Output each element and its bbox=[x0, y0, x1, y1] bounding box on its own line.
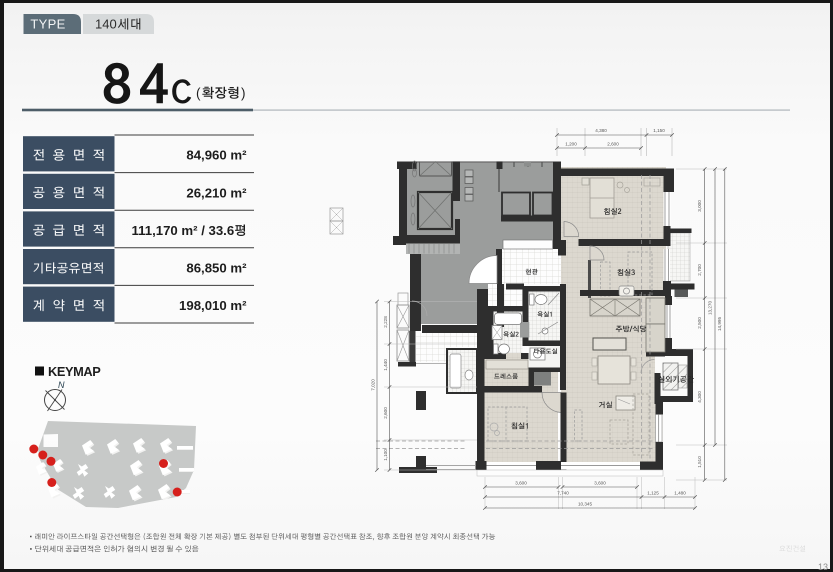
svg-text:1,125: 1,125 bbox=[647, 491, 659, 496]
svg-text:13: 13 bbox=[818, 562, 828, 572]
svg-text:2,600: 2,600 bbox=[383, 407, 388, 419]
svg-text:14,995: 14,995 bbox=[717, 317, 722, 331]
svg-text:4,380: 4,380 bbox=[595, 128, 607, 133]
svg-text:4,300: 4,300 bbox=[697, 391, 702, 403]
svg-text:2,228: 2,228 bbox=[383, 316, 388, 328]
svg-text:1,510: 1,510 bbox=[697, 456, 702, 468]
svg-text:10,345: 10,345 bbox=[578, 502, 592, 507]
svg-text:1,100: 1,100 bbox=[383, 449, 388, 461]
svg-text:N: N bbox=[58, 380, 65, 390]
svg-text:1,480: 1,480 bbox=[674, 491, 686, 496]
svg-text:3,600: 3,600 bbox=[515, 481, 527, 486]
svg-text:TYPE: TYPE bbox=[30, 17, 65, 32]
svg-text:2,600: 2,600 bbox=[607, 142, 619, 147]
svg-text:KEYMAP: KEYMAP bbox=[48, 364, 101, 379]
svg-text:26,210 m²: 26,210 m² bbox=[186, 185, 247, 200]
svg-text:86,850 m²: 86,850 m² bbox=[186, 261, 247, 276]
svg-text:140: 140 bbox=[95, 17, 117, 32]
svg-text:111,170 m² / 33.6: 111,170 m² / 33.6 bbox=[132, 223, 235, 238]
svg-text:3,600: 3,600 bbox=[594, 481, 606, 486]
svg-text:1,150: 1,150 bbox=[653, 128, 665, 133]
svg-text:2,500: 2,500 bbox=[697, 317, 702, 329]
svg-text:7,020: 7,020 bbox=[371, 379, 376, 391]
svg-text:(: ( bbox=[196, 86, 201, 101]
svg-text:84,960 m²: 84,960 m² bbox=[186, 148, 247, 163]
svg-text:2,700: 2,700 bbox=[697, 264, 702, 276]
svg-text:198,010 m²: 198,010 m² bbox=[179, 298, 247, 313]
svg-text:13,270: 13,270 bbox=[708, 301, 713, 315]
svg-text:1,440: 1,440 bbox=[383, 359, 388, 371]
svg-text:): ) bbox=[241, 86, 246, 101]
svg-text:7,740: 7,740 bbox=[557, 491, 569, 496]
svg-text:3,000: 3,000 bbox=[697, 200, 702, 212]
svg-text:1,200: 1,200 bbox=[565, 142, 577, 147]
